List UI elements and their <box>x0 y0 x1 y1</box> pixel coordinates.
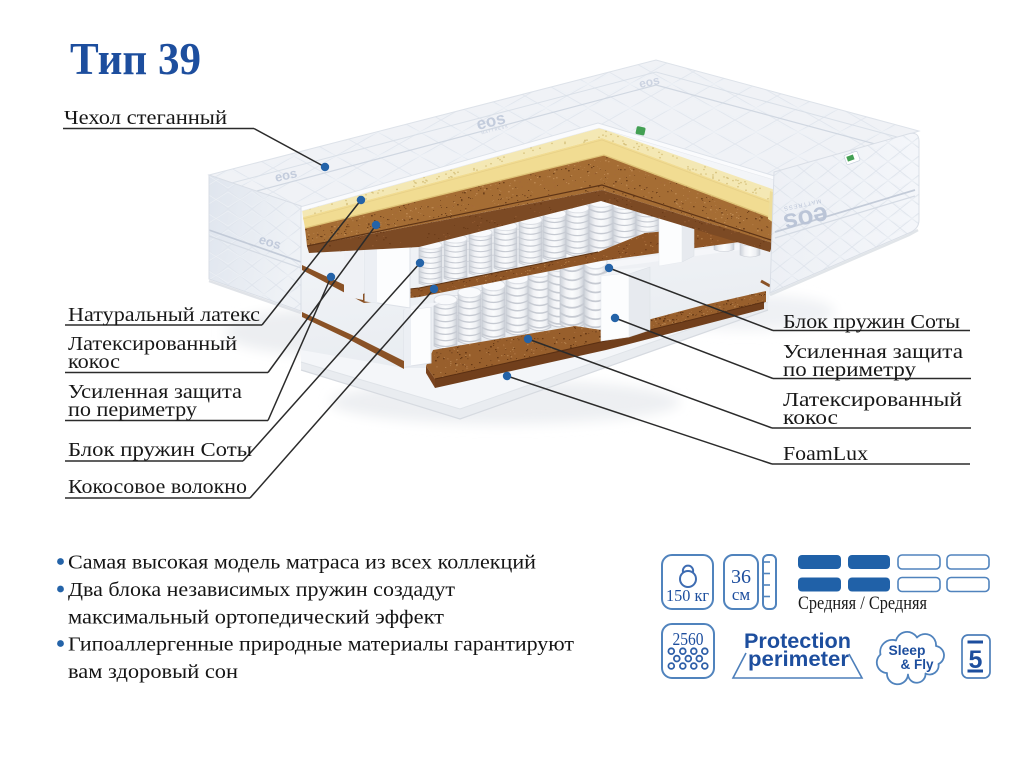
svg-text:Натуральный латекс: Натуральный латекс <box>68 304 260 326</box>
svg-text:Блок пружин Соты: Блок пружин Соты <box>68 439 252 461</box>
svg-text:Кокосовое волокно: Кокосовое волокно <box>68 476 247 498</box>
svg-text:вам здоровый сон: вам здоровый сон <box>68 661 238 683</box>
svg-text:максимальный ортопедический эф: максимальный ортопедический эффект <box>68 606 444 628</box>
svg-text:Два блока независимых пружин с: Два блока независимых пружин создадут <box>68 579 455 601</box>
svg-text:Средняя / Средняя: Средняя / Средняя <box>798 593 927 614</box>
svg-text:Блок пружин Соты: Блок пружин Соты <box>783 311 960 333</box>
svg-text:& Fly: & Fly <box>901 656 934 672</box>
svg-text:perimeter: perimeter <box>748 647 850 671</box>
svg-text:FoamLux: FoamLux <box>783 443 868 465</box>
svg-text:Самая высокая модель матраса и: Самая высокая модель матраса из всех кол… <box>68 552 536 574</box>
svg-text:по периметру: по периметру <box>68 399 197 421</box>
svg-text:Тип 39: Тип 39 <box>70 33 201 84</box>
svg-text:Гипоаллергенные природные мате: Гипоаллергенные природные материалы гара… <box>68 634 574 656</box>
svg-text:Чехол стеганный: Чехол стеганный <box>64 107 227 129</box>
svg-text:150 кг: 150 кг <box>666 586 709 605</box>
svg-text:кокос: кокос <box>68 351 120 373</box>
svg-text:2560: 2560 <box>673 629 704 649</box>
svg-text:см: см <box>732 585 751 604</box>
svg-text:кокос: кокос <box>783 407 838 429</box>
svg-text:по периметру: по периметру <box>783 359 916 381</box>
